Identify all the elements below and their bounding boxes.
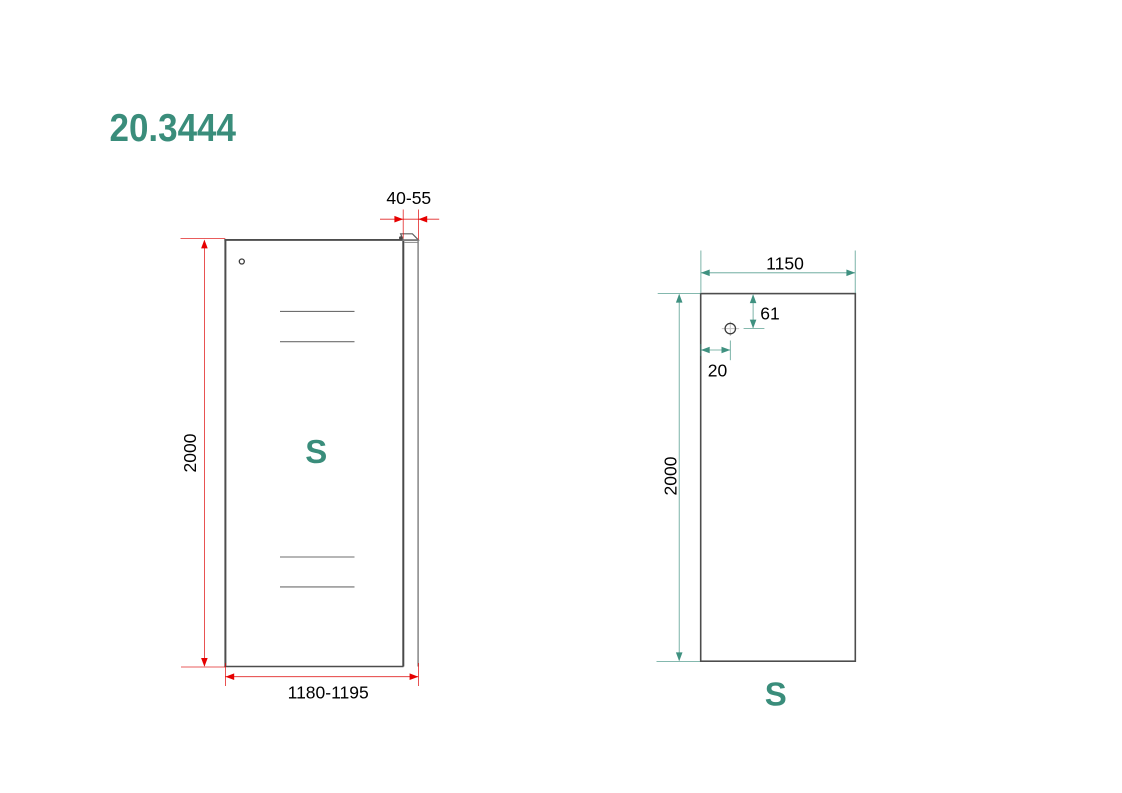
svg-text:61: 61	[760, 304, 779, 324]
svg-text:1180-1195: 1180-1195	[288, 682, 369, 702]
svg-text:2000: 2000	[660, 456, 680, 495]
svg-text:20: 20	[708, 360, 728, 380]
svg-text:40-55: 40-55	[386, 188, 431, 208]
svg-text:S: S	[765, 676, 787, 713]
svg-text:20.3444: 20.3444	[110, 106, 237, 149]
svg-text:1150: 1150	[766, 253, 804, 273]
svg-text:2000: 2000	[180, 433, 200, 472]
svg-text:S: S	[305, 433, 327, 470]
